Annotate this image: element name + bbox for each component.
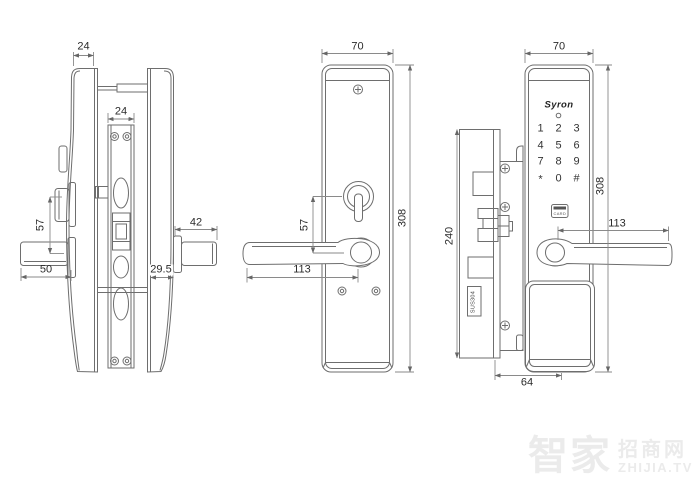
thumbturn bbox=[344, 182, 374, 222]
keypad-key-3: 3 bbox=[573, 124, 579, 135]
interior-view bbox=[243, 49, 414, 372]
technical-drawing-canvas bbox=[0, 0, 700, 500]
exterior-handle-side bbox=[174, 236, 217, 273]
keypad-key-5: 5 bbox=[555, 140, 561, 151]
watermark: 智家 招商网 ZHIJIA.TV bbox=[528, 434, 693, 478]
exterior-escutcheon-profile bbox=[148, 69, 174, 373]
faceplate-material-label: SUS304 bbox=[471, 290, 477, 312]
keypad-key-star: * bbox=[538, 175, 542, 186]
dim-label-faceplate-width: 24 bbox=[113, 107, 129, 118]
faceplate-edge bbox=[494, 130, 501, 359]
aux-bolt-block bbox=[468, 257, 494, 278]
dim-label-exterior-width: 70 bbox=[553, 41, 565, 52]
card-slot bbox=[554, 207, 567, 210]
spindle bbox=[98, 84, 148, 92]
dim-label-top-width: 24 bbox=[77, 42, 89, 53]
mortise-lock-body bbox=[460, 130, 524, 359]
lock-technical-drawing: 24 24 57 50 42 29.5 70 308 57 113 70 308… bbox=[0, 0, 700, 500]
screw-icon bbox=[501, 164, 510, 173]
dim-label-handle-depth: 50 bbox=[40, 265, 52, 276]
dim-label-panel-thickness: 29.5 bbox=[148, 265, 173, 276]
screw-icon bbox=[123, 133, 131, 141]
dim-label-exterior-handle-depth: 42 bbox=[190, 218, 202, 229]
keypad-key-7: 7 bbox=[537, 156, 543, 167]
mounting-tab-bottom bbox=[517, 335, 524, 351]
dim-label-turn-to-handle: 57 bbox=[300, 216, 311, 232]
dim-label-interior-handle-length: 113 bbox=[293, 265, 311, 276]
dim-label-interior-height: 308 bbox=[398, 207, 409, 229]
battery-cover bbox=[526, 281, 595, 372]
watermark-site: ZHIJIA.TV bbox=[618, 460, 693, 476]
side-view-dimensions bbox=[21, 52, 217, 281]
screw-icon bbox=[123, 357, 131, 365]
side-view bbox=[21, 52, 218, 372]
interior-view-dimensions bbox=[247, 49, 414, 372]
privacy-knob-bump bbox=[59, 146, 67, 172]
keypad-key-2: 2 bbox=[555, 124, 561, 135]
dim-label-interior-width: 70 bbox=[351, 41, 363, 52]
thumbturn-side bbox=[55, 183, 76, 227]
keypad-key-8: 8 bbox=[555, 156, 561, 167]
screw-icon bbox=[111, 133, 119, 141]
dim-label-turn-to-handle-side: 57 bbox=[36, 219, 47, 231]
mounting-tab-top bbox=[517, 146, 524, 162]
keypad-key-1: 1 bbox=[537, 124, 543, 135]
exterior-handle bbox=[537, 239, 672, 266]
dim-label-exterior-height: 308 bbox=[595, 174, 606, 196]
indicator-led bbox=[556, 113, 561, 118]
watermark-sub: 招商网 bbox=[618, 440, 693, 460]
deadbolt-block bbox=[473, 172, 494, 196]
keypad-key-4: 4 bbox=[537, 140, 543, 151]
mortise-faceplate-side bbox=[96, 125, 135, 368]
screw-icon bbox=[501, 203, 510, 212]
dim-label-body-width: 64 bbox=[521, 377, 533, 388]
watermark-main: 智家 bbox=[528, 434, 612, 478]
card-reader-label: CARD bbox=[554, 212, 567, 216]
fixing-screws bbox=[338, 287, 380, 295]
latch-bolt bbox=[113, 213, 131, 250]
screw-icon bbox=[501, 321, 510, 330]
keypad-key-6: 6 bbox=[573, 140, 579, 151]
keypad-key-hash: # bbox=[573, 174, 579, 185]
interior-escutcheon-profile bbox=[59, 69, 98, 373]
interior-handle bbox=[243, 238, 380, 267]
screw-icon bbox=[354, 85, 363, 94]
brand-logo: Syron bbox=[545, 100, 574, 110]
screw-icon bbox=[111, 357, 119, 365]
latch-assembly bbox=[478, 209, 513, 242]
keypad-key-9: 9 bbox=[573, 156, 579, 167]
dim-label-exterior-handle-length: 113 bbox=[608, 218, 626, 229]
dim-label-lock-body-height: 240 bbox=[444, 225, 455, 247]
keypad-key-0: 0 bbox=[555, 174, 561, 185]
